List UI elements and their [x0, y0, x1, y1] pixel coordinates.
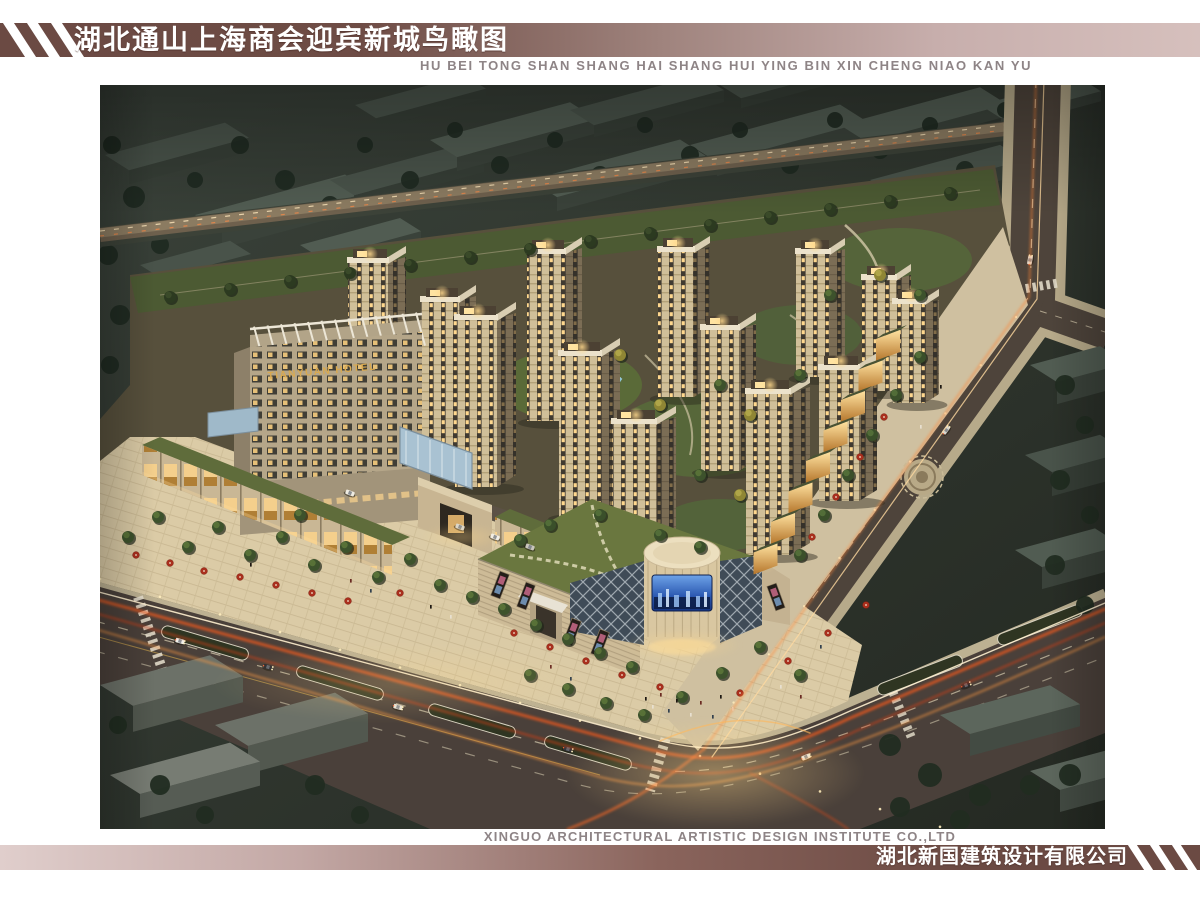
presentation-board: 湖北通山上海商会迎宾新城鸟瞰图 HU BEI TONG SHAN SHANG H… — [0, 0, 1200, 900]
diagonal-stripe-decoration — [1172, 845, 1197, 870]
design-institute-name-cn: 湖北新国建筑设计有限公司 — [876, 845, 1128, 870]
footer-band: 湖北新国建筑设计有限公司 — [0, 845, 1200, 870]
page-title: 湖北通山上海商会迎宾新城鸟瞰图 — [74, 24, 509, 57]
aerial-rendering-image: TIANYUAN HOTEL — [100, 85, 1105, 829]
header-band: 湖北通山上海商会迎宾新城鸟瞰图 — [0, 23, 1200, 57]
design-institute-name-en: XINGUO ARCHITECTURAL ARTISTIC DESIGN INS… — [420, 829, 1020, 844]
diagonal-stripe-decoration — [1150, 845, 1175, 870]
diagonal-stripe-decoration — [1128, 845, 1153, 870]
page-title-pinyin: HU BEI TONG SHAN SHANG HAI SHANG HUI YIN… — [420, 58, 980, 73]
aerial-rendering-svg: TIANYUAN HOTEL — [100, 85, 1105, 829]
